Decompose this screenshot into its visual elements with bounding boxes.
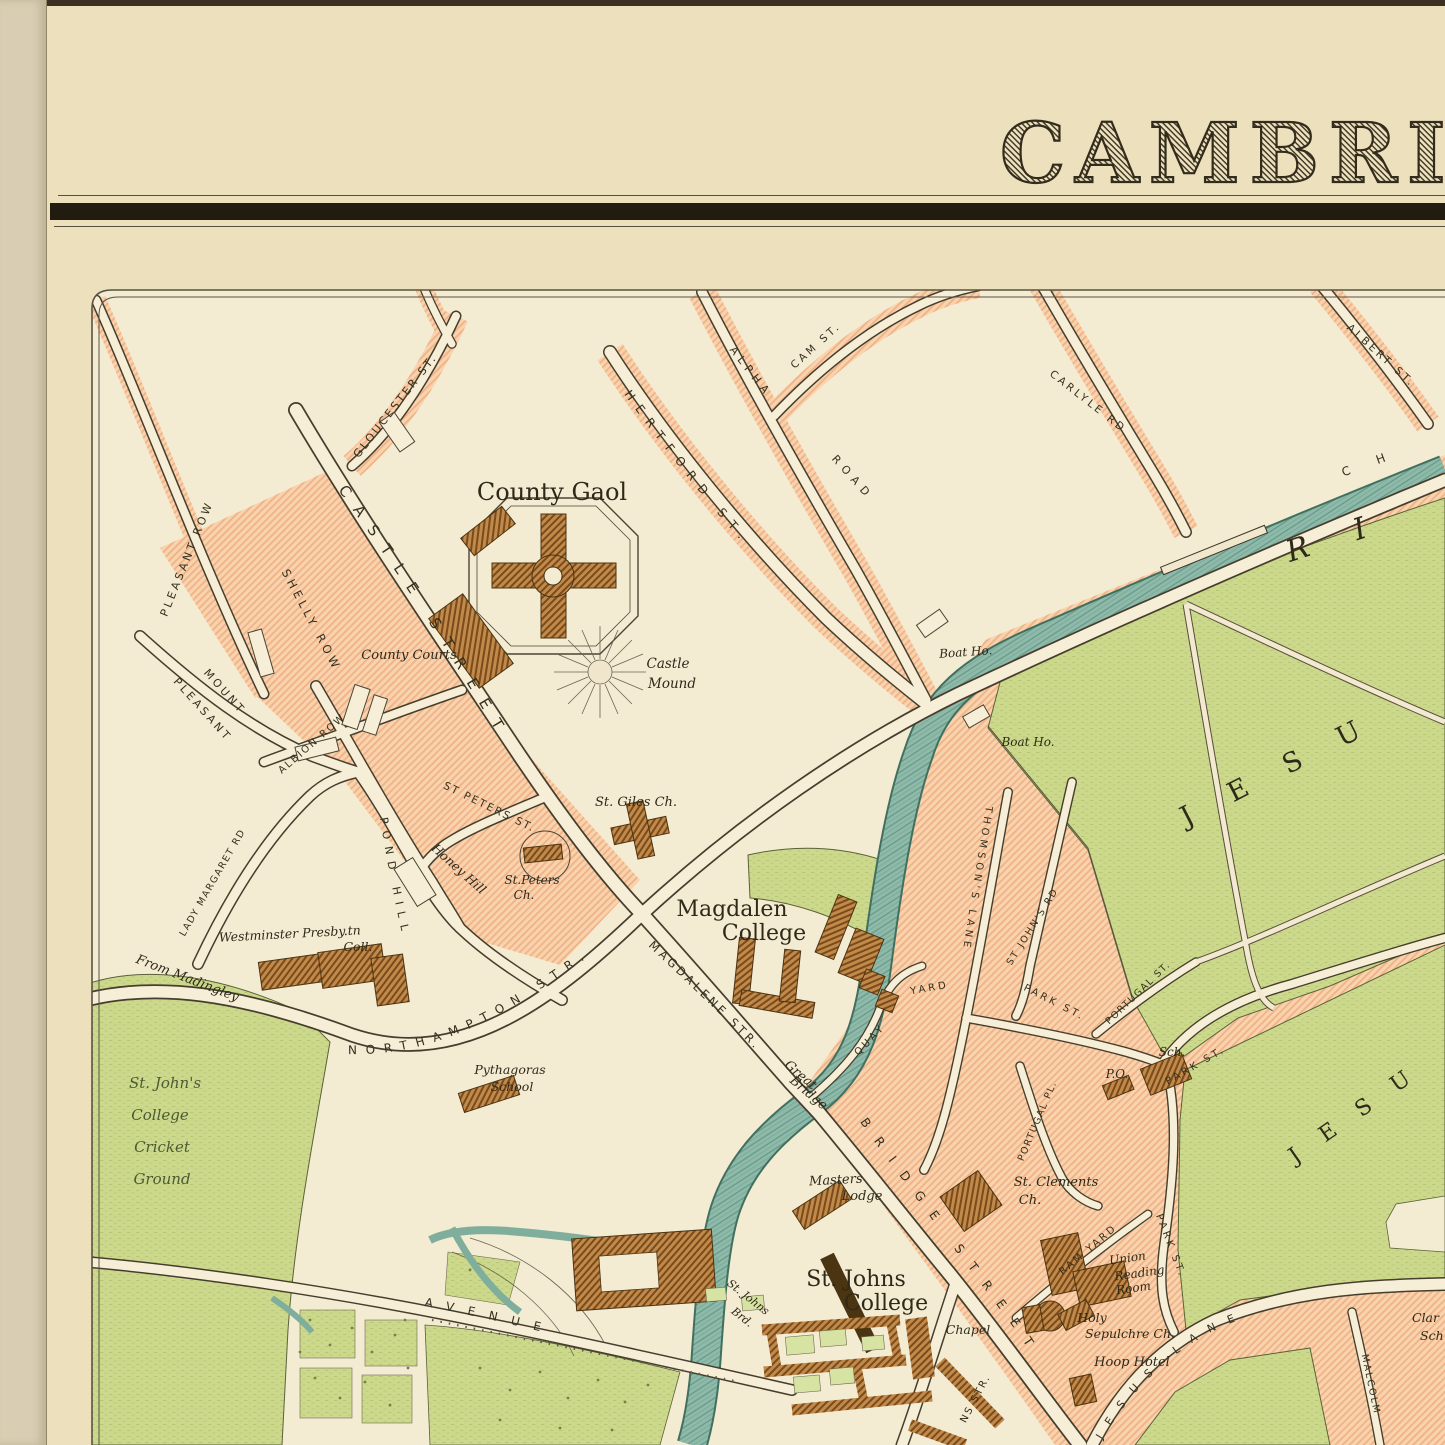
- label-clar-1: Clar: [1412, 1310, 1440, 1325]
- label-cricket-3: Cricket: [134, 1138, 191, 1156]
- label-st-johns-college-1: St. Johns: [806, 1267, 906, 1292]
- map-sheet: CAMBRIDGE: [0, 0, 1445, 1445]
- label-holy-sepulchre-2: Sepulchre Ch.: [1085, 1326, 1175, 1341]
- label-cricket-4: Ground: [133, 1170, 190, 1188]
- label-chapel: Chapel: [946, 1322, 990, 1337]
- label-magdalen-1: Magdalen: [676, 897, 787, 922]
- label-st-clements-1: St. Clements: [1014, 1175, 1099, 1190]
- label-cricket-2: College: [131, 1106, 189, 1124]
- label-st-johns-college-2: College: [844, 1291, 928, 1316]
- label-pythagoras-2: School: [491, 1079, 534, 1094]
- label-st-giles-ch: St. Giles Ch.: [595, 795, 677, 810]
- label-castle-mound-2: Mound: [647, 676, 696, 692]
- city-map: GLOUCESTER ST. PLEASANT ROW SHELLY ROW C…: [0, 0, 1445, 1445]
- label-boat-ho-2: Boat Ho.: [1000, 735, 1054, 749]
- label-po: P.O.: [1105, 1067, 1128, 1081]
- label-county-gaol: County Gaol: [477, 478, 627, 506]
- label-cricket-1: St. John's: [129, 1074, 201, 1092]
- label-westminster-2: Coll.: [343, 939, 372, 954]
- label-magdalen-2: College: [722, 921, 806, 946]
- label-hoop-hotel: Hoop Hotel: [1093, 1355, 1170, 1370]
- label-st-clements-2: Ch.: [1019, 1193, 1041, 1208]
- label-castle-mound-1: Castle: [646, 656, 689, 672]
- label-holy-sepulchre-1: Holy: [1076, 1310, 1107, 1325]
- label-masters-lodge-2: Lodge: [841, 1189, 883, 1204]
- label-masters-lodge-1: Masters: [808, 1172, 864, 1190]
- label-county-courts: County Courts: [361, 648, 457, 663]
- label-sch: Sch.: [1159, 1045, 1185, 1059]
- label-clar-2: Sch: [1420, 1328, 1444, 1343]
- label-st-peters-ch-2: Ch.: [514, 888, 535, 902]
- label-st-peters-ch-1: St.Peters: [504, 873, 559, 887]
- label-pythagoras-1: Pythagoras: [473, 1062, 545, 1077]
